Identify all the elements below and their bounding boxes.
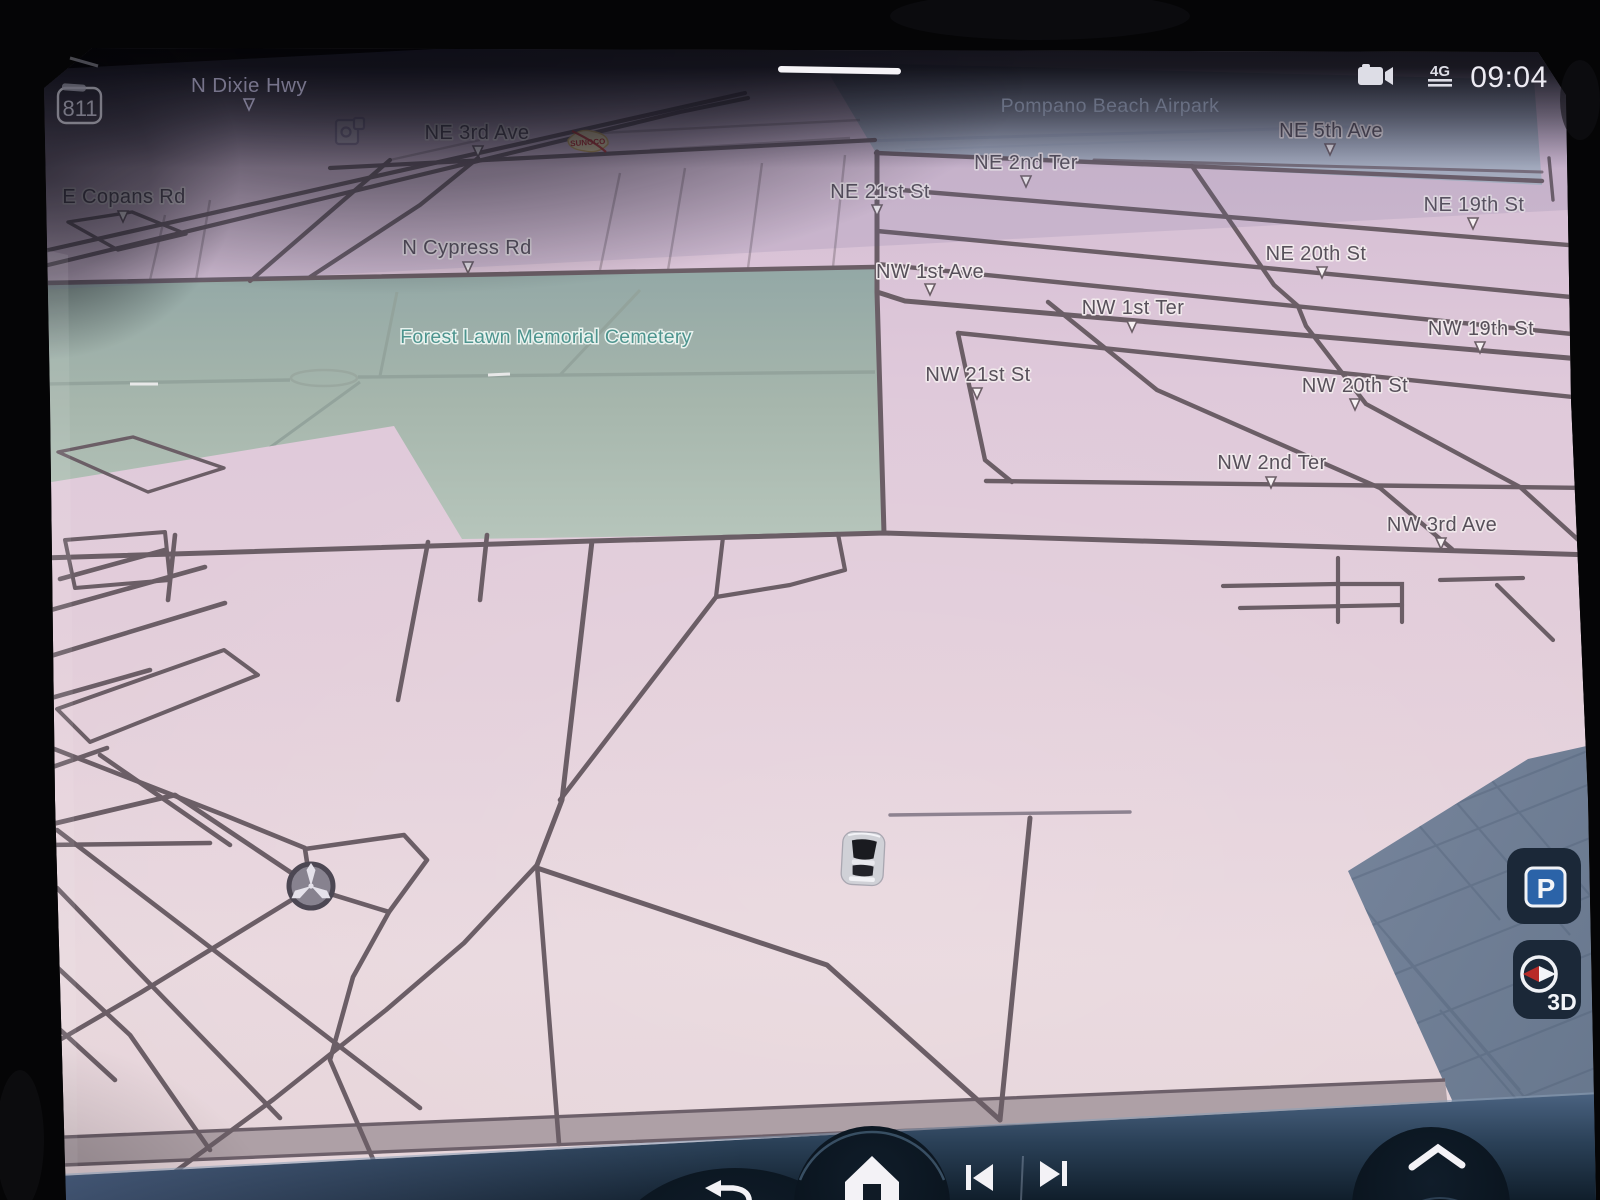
- svg-text:4G: 4G: [1430, 63, 1450, 80]
- svg-text:811: 811: [62, 96, 97, 121]
- svg-text:NW 3rd Ave: NW 3rd Ave: [1387, 514, 1497, 536]
- svg-text:NW 19th St: NW 19th St: [1428, 318, 1534, 340]
- svg-text:P: P: [1537, 873, 1556, 904]
- svg-text:N Dixie Hwy: N Dixie Hwy: [191, 74, 307, 97]
- svg-text:3D: 3D: [1547, 989, 1576, 1015]
- svg-text:Forest Lawn Memorial Cemetery: Forest Lawn Memorial Cemetery: [400, 326, 692, 348]
- svg-text:NW 21st St: NW 21st St: [925, 364, 1030, 386]
- svg-text:09:04: 09:04: [1470, 61, 1548, 94]
- svg-text:NW 2nd Ter: NW 2nd Ter: [1217, 452, 1326, 474]
- svg-text:Pompano Beach Airpark: Pompano Beach Airpark: [1001, 95, 1220, 117]
- svg-text:NW 20th St: NW 20th St: [1302, 375, 1408, 397]
- svg-text:NW 1st Ter: NW 1st Ter: [1082, 297, 1185, 319]
